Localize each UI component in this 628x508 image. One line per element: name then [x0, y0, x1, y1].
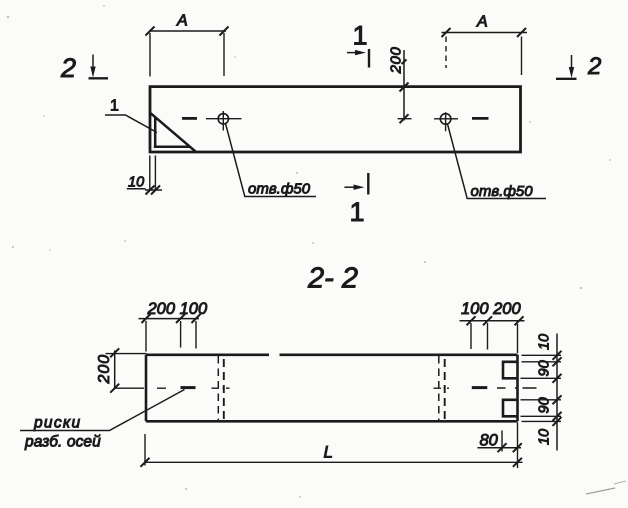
svg-text:200 100: 200 100 — [147, 300, 208, 318]
svg-text:отв.ф50: отв.ф50 — [471, 183, 534, 200]
svg-text:1: 1 — [110, 98, 119, 115]
svg-text:90: 90 — [537, 360, 553, 376]
svg-text:A: A — [176, 13, 188, 30]
svg-text:2: 2 — [60, 53, 76, 83]
svg-text:риски: риски — [33, 415, 81, 432]
svg-text:1: 1 — [350, 197, 365, 227]
svg-text:10: 10 — [536, 334, 552, 350]
svg-text:90: 90 — [537, 397, 553, 413]
svg-text:2: 2 — [587, 53, 601, 80]
svg-text:10: 10 — [536, 429, 552, 445]
svg-text:200: 200 — [96, 354, 113, 385]
svg-text:200: 200 — [388, 47, 405, 75]
svg-text:отв.ф50: отв.ф50 — [248, 181, 311, 198]
svg-text:L: L — [324, 443, 333, 462]
svg-text:разб. осей: разб. осей — [24, 434, 101, 451]
svg-text:80: 80 — [480, 432, 499, 450]
svg-text:2- 2: 2- 2 — [307, 263, 358, 295]
svg-text:1: 1 — [353, 21, 368, 51]
svg-text:100 200: 100 200 — [461, 300, 521, 318]
svg-text:A: A — [476, 14, 488, 31]
